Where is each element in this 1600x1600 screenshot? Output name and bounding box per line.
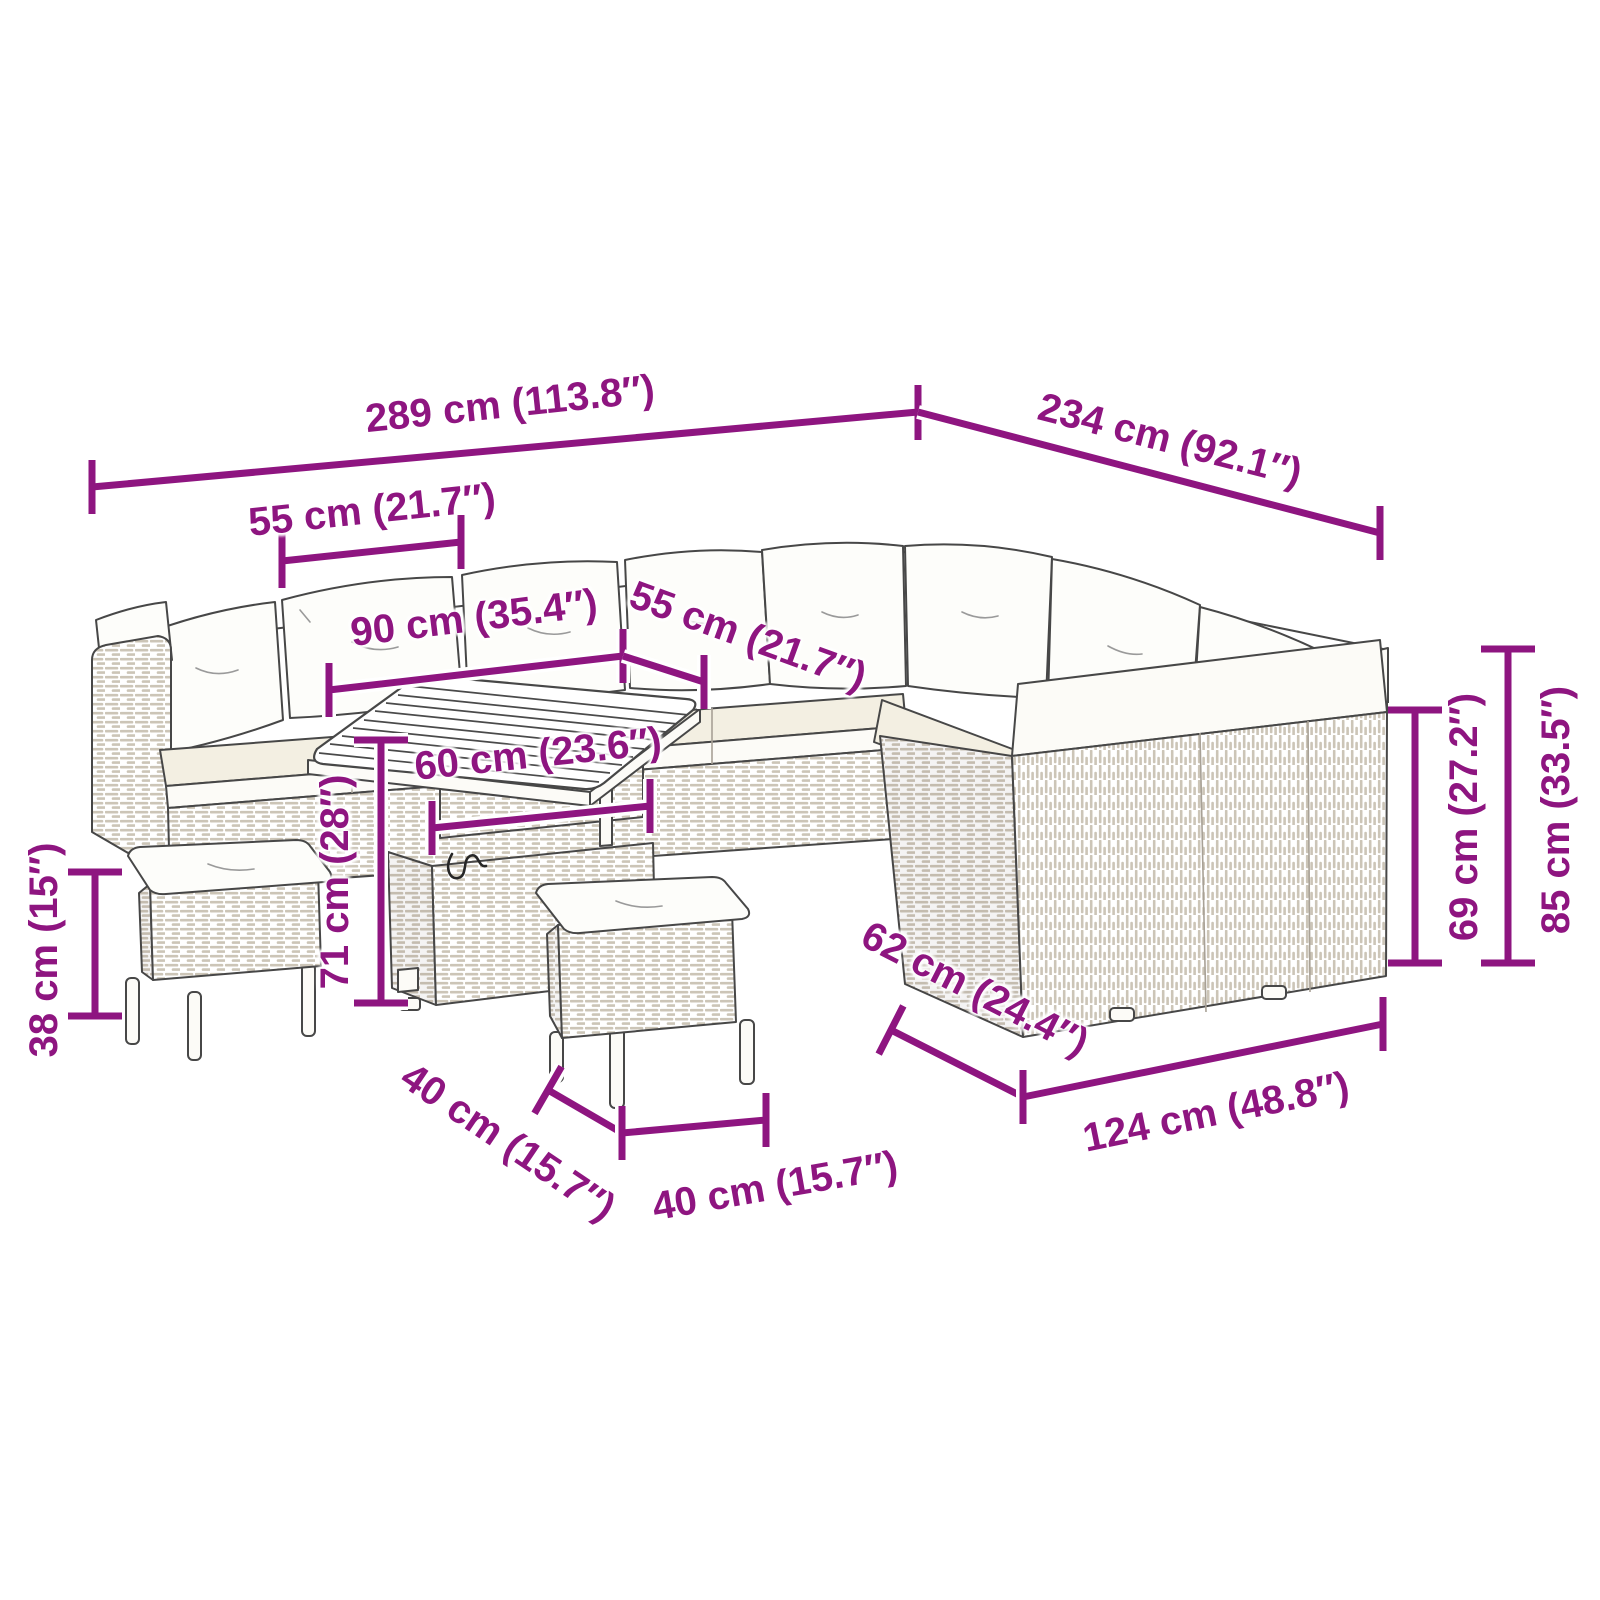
dimension-label-back-height: 85 cm (33.5″) bbox=[1536, 686, 1576, 934]
dimension-line-stool-width bbox=[622, 1093, 766, 1160]
dimension-diagram: 289 cm (113.8″) 234 cm (92.1″) 55 cm (21… bbox=[0, 0, 1600, 1600]
dimension-label-stool-height: 38 cm (15″) bbox=[24, 843, 64, 1058]
dimension-line-stool-height bbox=[68, 872, 122, 1016]
dimension-label-seat-height: 69 cm (27.2″) bbox=[1444, 693, 1484, 941]
dimension-line-table-height bbox=[354, 740, 408, 1003]
dimension-label-table-height: 71 cm (28″) bbox=[315, 775, 355, 990]
dimension-line-stool-depth bbox=[535, 1067, 623, 1133]
dimension-line-seat-height bbox=[1388, 710, 1442, 963]
dimension-lines bbox=[0, 0, 1600, 1600]
dimension-line-section-width-middle bbox=[623, 655, 704, 709]
dimension-line-back-height bbox=[1481, 649, 1535, 963]
dimension-line-table-depth bbox=[432, 779, 650, 855]
